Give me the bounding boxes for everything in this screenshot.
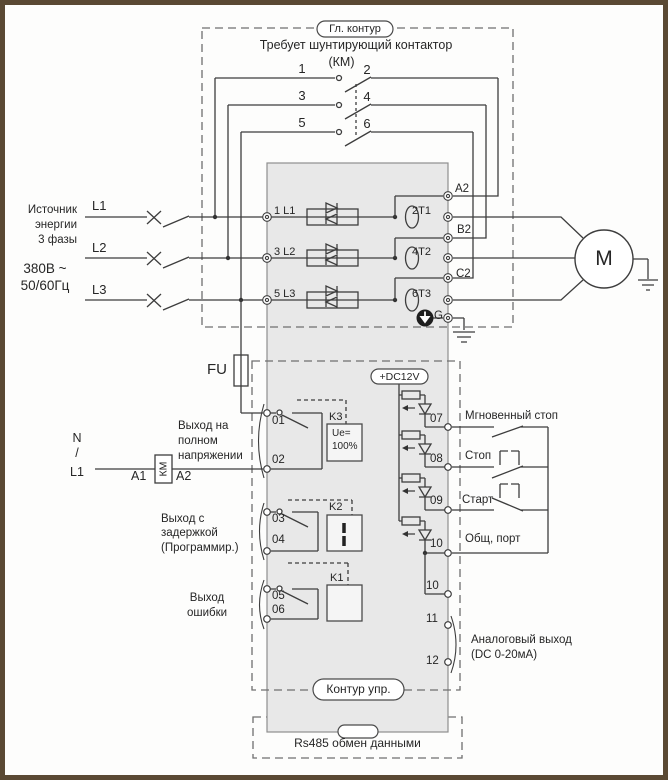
- terminal-c2: C2: [456, 268, 471, 281]
- fuse-symbol: [234, 300, 263, 413]
- out1-desc-3: напряжении: [178, 450, 243, 463]
- frequency-label: 50/60Гц: [13, 278, 77, 294]
- phase-l3-label: L3: [92, 283, 106, 298]
- input-label-start: Старт: [462, 494, 493, 507]
- terminal-05: 05: [272, 590, 285, 603]
- dc12v-label: +DC12V: [371, 371, 428, 383]
- k1-label: K1: [330, 572, 343, 585]
- km-a1-label: A1: [131, 469, 146, 483]
- contact-num-4: 4: [360, 90, 374, 105]
- motor-label: M: [590, 247, 618, 271]
- voltage-label: 380В ~: [13, 261, 77, 277]
- phase-l2-label: L2: [92, 241, 106, 256]
- terminal-10b: 10: [426, 580, 439, 593]
- km-a2-label: A2: [176, 469, 191, 483]
- terminal-5l3: 5 L3: [274, 288, 295, 301]
- soft-starter-wiring-diagram: Гл. контур Требует шунтирующий контактор…: [0, 0, 668, 780]
- terminal-11: 11: [426, 613, 438, 626]
- analog-output-label-1: Аналоговый выход: [471, 634, 572, 647]
- terminal-03: 03: [272, 513, 285, 526]
- k2-label: K2: [329, 501, 342, 514]
- out2-desc-3: (Программир.): [161, 542, 239, 555]
- out3-desc-2: ошибки: [175, 607, 239, 620]
- rs485-label: Rs485 обмен данными: [255, 737, 460, 751]
- terminal-2t1: 2T1: [412, 205, 431, 218]
- terminal-07: 07: [430, 413, 443, 426]
- terminal-02: 02: [272, 454, 285, 467]
- input-label-instant-stop: Мгновенный стоп: [465, 410, 558, 423]
- terminal-g: G: [434, 310, 443, 323]
- phase-l1-label: L1: [92, 199, 106, 214]
- terminal-04: 04: [272, 534, 285, 547]
- motor: [453, 217, 658, 300]
- input-label-stop: Стоп: [465, 450, 491, 463]
- source-label-3: 3 фазы: [19, 234, 77, 247]
- contact-num-1: 1: [295, 62, 309, 77]
- out2-desc-2: задержкой: [161, 527, 218, 540]
- k3-box-line1: Ue=: [332, 428, 351, 440]
- contact-num-2: 2: [360, 63, 374, 78]
- k3-label: K3: [329, 411, 342, 424]
- phase-lines: [85, 211, 263, 310]
- supply-slash: /: [66, 446, 88, 460]
- terminal-06: 06: [272, 604, 285, 617]
- source-label-1: Источник: [19, 204, 77, 217]
- k1-box: [327, 585, 362, 621]
- input-label-common-port: Общ, порт: [465, 533, 520, 546]
- contact-num-6: 6: [360, 117, 374, 132]
- out1-desc-1: Выход на: [178, 420, 228, 433]
- supply-l1: L1: [66, 465, 88, 479]
- terminal-09: 09: [430, 495, 443, 508]
- terminal-10: 10: [430, 538, 443, 551]
- terminal-01: 01: [272, 415, 285, 428]
- terminal-08: 08: [430, 453, 443, 466]
- terminal-12: 12: [426, 655, 439, 668]
- supply-n: N: [66, 431, 88, 445]
- source-label-2: энергии: [19, 219, 77, 232]
- contact-num-5: 5: [295, 116, 309, 131]
- analog-output-label-2: (DC 0-20мА): [471, 649, 537, 662]
- wiring-diagram-svg: [5, 5, 668, 780]
- terminal-3l2: 3 L2: [274, 246, 295, 259]
- contact-num-3: 3: [295, 89, 309, 104]
- terminal-4t2: 4T2: [412, 246, 431, 259]
- out1-desc-2: полном: [178, 435, 218, 448]
- k3-box-line2: 100%: [332, 441, 358, 453]
- bypass-note: Требует шунтирующий контактор: [203, 38, 509, 52]
- terminal-a2: A2: [455, 183, 469, 196]
- terminal-b2: B2: [457, 224, 471, 237]
- main-circuit-pill-label: Гл. контур: [317, 23, 393, 36]
- terminal-6t3: 6T3: [412, 288, 431, 301]
- out3-desc-1: Выход: [175, 592, 239, 605]
- bypass-note-km: (КМ): [325, 55, 358, 69]
- control-circuit-pill-label: Контур упр.: [313, 683, 404, 697]
- out2-desc-1: Выход с: [161, 513, 204, 526]
- terminal-1l1: 1 L1: [274, 205, 295, 218]
- km-coil-label: КМ: [157, 455, 169, 484]
- fuse-label: FU: [207, 361, 227, 378]
